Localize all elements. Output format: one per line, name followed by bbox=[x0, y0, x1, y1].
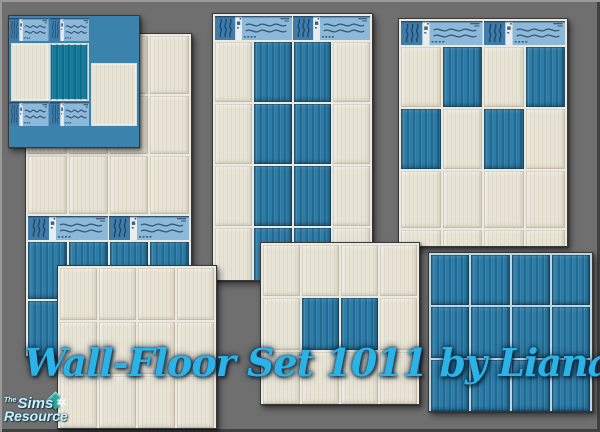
tile-cream bbox=[69, 156, 108, 214]
tile-cream bbox=[484, 230, 524, 247]
sparkle-icon: ✲ bbox=[57, 398, 66, 408]
tile-cream bbox=[526, 171, 566, 228]
tile-cream bbox=[215, 228, 252, 281]
wave-border-tile bbox=[9, 18, 49, 41]
border-strip bbox=[215, 16, 370, 40]
wave-border-tile bbox=[50, 18, 90, 41]
tile-cream bbox=[333, 42, 370, 102]
tile-cream bbox=[333, 166, 370, 226]
logo-resource: Resource bbox=[4, 410, 76, 423]
tile-cream bbox=[443, 230, 483, 247]
tile-teal bbox=[50, 44, 88, 100]
tile-cream bbox=[215, 42, 252, 102]
tile-row bbox=[28, 156, 189, 214]
tile-cream bbox=[215, 166, 252, 226]
tile-blue bbox=[254, 104, 291, 164]
tile-blue bbox=[254, 166, 291, 226]
tile-cream bbox=[443, 171, 483, 228]
wave-border-tile bbox=[215, 16, 292, 40]
tile-cream bbox=[110, 156, 149, 214]
tile-cream bbox=[484, 47, 524, 107]
tile-cream bbox=[401, 47, 441, 107]
tile-row bbox=[401, 109, 565, 169]
tile-cream bbox=[215, 104, 252, 164]
tile-cream bbox=[333, 104, 370, 164]
tile-blue bbox=[526, 47, 566, 107]
tile-cream bbox=[150, 156, 189, 214]
tile-row bbox=[215, 166, 370, 226]
tile-cream bbox=[150, 36, 189, 94]
panel-wall-blue-stripe bbox=[212, 13, 373, 281]
border-strip bbox=[28, 216, 189, 240]
tile-cream bbox=[28, 156, 67, 214]
wave-border-tile bbox=[9, 102, 49, 126]
tile-blue bbox=[443, 47, 483, 107]
tile-cream bbox=[484, 171, 524, 228]
tile-blue bbox=[294, 166, 331, 226]
tile-blue bbox=[484, 109, 524, 169]
tile-blue bbox=[512, 255, 550, 305]
tile-cream bbox=[302, 245, 339, 296]
tile-cream bbox=[263, 245, 300, 296]
tile-row bbox=[401, 171, 565, 228]
panel-floor-blue bbox=[428, 252, 593, 412]
caption-text: Wall-Floor Set 1011 by Lianaa bbox=[24, 340, 590, 386]
tile-cream bbox=[92, 64, 136, 125]
tile-blue bbox=[552, 255, 590, 305]
tile-row bbox=[215, 42, 370, 102]
tile-row bbox=[215, 104, 370, 164]
tile-cream bbox=[401, 171, 441, 228]
panel-corner-border-sample bbox=[8, 15, 140, 148]
tile-row bbox=[401, 47, 565, 107]
wave-border-tile bbox=[484, 21, 566, 45]
tsr-logo: ✲ TheSims Resource bbox=[4, 396, 76, 424]
tile-cream bbox=[12, 44, 48, 100]
wave-border-tile bbox=[401, 21, 483, 45]
tile-row bbox=[60, 268, 214, 320]
border-strip bbox=[9, 102, 89, 126]
tile-blue bbox=[254, 42, 291, 102]
tile-row bbox=[431, 255, 590, 305]
tile-cream bbox=[99, 268, 136, 320]
wave-border-tile bbox=[28, 216, 108, 240]
tile-cream bbox=[341, 245, 378, 296]
tile-blue bbox=[294, 42, 331, 102]
wave-border-tile bbox=[293, 16, 370, 40]
tile-blue bbox=[471, 255, 509, 305]
preview-image: Wall-Floor Set 1011 by Lianaa ✲ TheSims … bbox=[0, 0, 600, 432]
tile-cream bbox=[177, 268, 214, 320]
panel-wall-checkerboard bbox=[398, 18, 568, 247]
tile-row bbox=[263, 245, 417, 296]
tile-cream bbox=[526, 230, 566, 247]
wave-border-tile bbox=[109, 216, 189, 240]
border-strip bbox=[401, 21, 565, 45]
tile-cream bbox=[380, 245, 417, 296]
tile-cream bbox=[138, 268, 175, 320]
tile-cream bbox=[150, 96, 189, 154]
tile-blue bbox=[294, 104, 331, 164]
border-strip bbox=[9, 18, 89, 41]
tile-cream bbox=[526, 109, 566, 169]
tile-cream bbox=[60, 268, 97, 320]
logo-the: The bbox=[4, 397, 16, 404]
tile-row bbox=[401, 230, 565, 247]
tile-blue bbox=[431, 255, 469, 305]
wave-border-tile bbox=[50, 102, 90, 126]
tile-blue bbox=[401, 109, 441, 169]
tile-cream bbox=[443, 109, 483, 169]
